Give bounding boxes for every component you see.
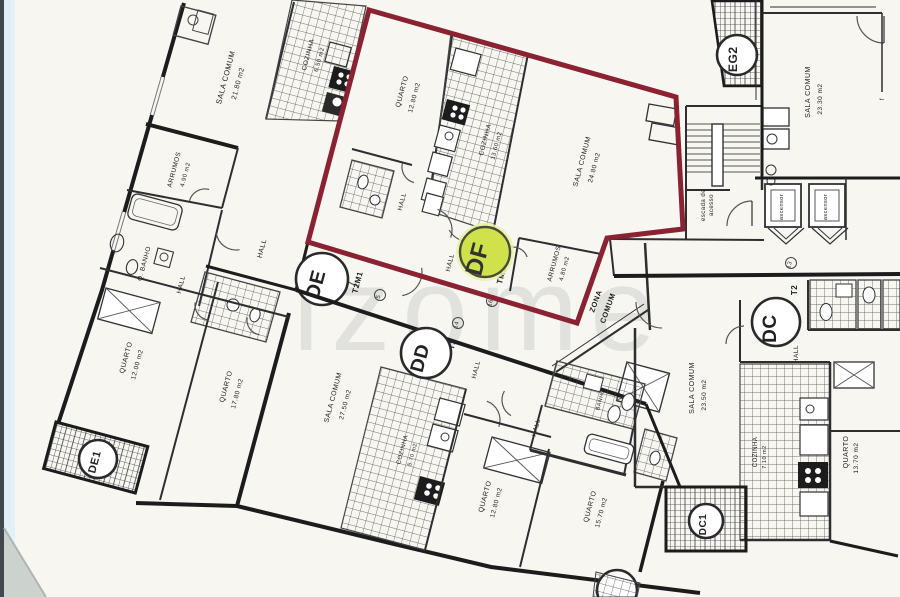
svg-text:ascensor: ascensor	[823, 194, 829, 220]
svg-text:DC1: DC1	[698, 514, 709, 536]
svg-text:7.10 m2: 7.10 m2	[762, 445, 768, 468]
svg-text:acesso: acesso	[709, 194, 715, 216]
svg-text:SALA COMUM: SALA COMUM	[689, 362, 696, 414]
svg-text:HALL: HALL	[793, 345, 800, 363]
svg-text:13.70 m2: 13.70 m2	[853, 442, 860, 473]
svg-text:DC: DC	[760, 314, 781, 342]
svg-text:EG2: EG2	[726, 46, 740, 72]
svg-text:23.50 m2: 23.50 m2	[701, 379, 708, 410]
svg-text:escada de: escada de	[701, 189, 707, 221]
svg-text:23.30 m2: 23.30 m2	[817, 83, 824, 114]
svg-text:COZINHA: COZINHA	[753, 437, 759, 468]
svg-text:QUARTO: QUARTO	[843, 436, 850, 469]
svg-text:SALA COMUM: SALA COMUM	[805, 66, 812, 118]
svg-text:T2: T2	[790, 285, 799, 295]
svg-text:ascensor: ascensor	[779, 194, 785, 220]
svg-text:f: f	[880, 98, 886, 100]
